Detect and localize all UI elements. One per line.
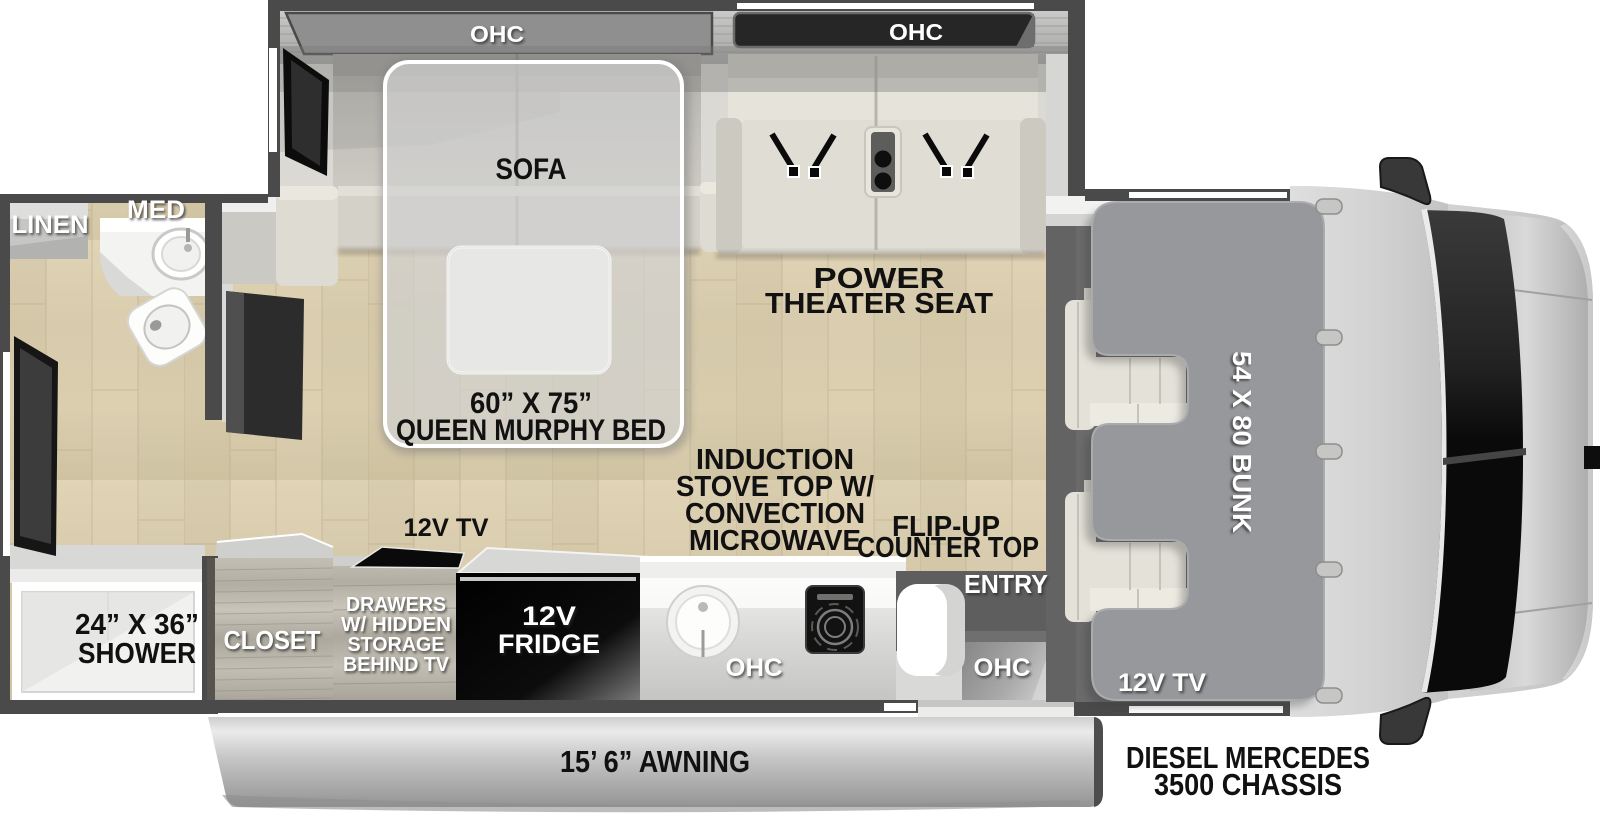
svg-text:OHC: OHC [470,21,524,47]
svg-text:DRAWERS: DRAWERS [346,594,446,616]
svg-text:SOFA: SOFA [496,153,567,186]
svg-text:24” X 36”: 24” X 36” [75,609,199,641]
svg-text:MED: MED [127,196,185,224]
svg-text:QUEEN MURPHY BED: QUEEN MURPHY BED [396,414,666,447]
svg-text:OHC: OHC [974,654,1031,682]
svg-text:CLOSET: CLOSET [224,625,321,655]
svg-text:MICROWAVE: MICROWAVE [689,525,861,557]
svg-text:BEHIND TV: BEHIND TV [343,654,450,676]
svg-text:STORAGE: STORAGE [348,634,445,656]
svg-text:SHOWER: SHOWER [78,638,196,670]
svg-text:FRIDGE: FRIDGE [498,629,600,659]
svg-text:ENTRY: ENTRY [964,569,1048,599]
svg-text:12V TV: 12V TV [1118,669,1206,697]
svg-text:THEATER SEAT: THEATER SEAT [765,288,993,320]
svg-text:OHC: OHC [726,654,783,682]
svg-text:COUNTER TOP: COUNTER TOP [857,532,1039,564]
svg-text:3500 CHASSIS: 3500 CHASSIS [1154,767,1342,802]
svg-text:LINEN: LINEN [12,211,89,239]
svg-text:15’ 6” AWNING: 15’ 6” AWNING [560,744,750,779]
svg-text:12V TV: 12V TV [404,514,489,542]
svg-text:OHC: OHC [889,19,943,45]
svg-text:12V: 12V [522,601,576,631]
svg-text:W/ HIDDEN: W/ HIDDEN [341,614,451,636]
svg-text:54 X 80 BUNK: 54 X 80 BUNK [1227,351,1257,533]
